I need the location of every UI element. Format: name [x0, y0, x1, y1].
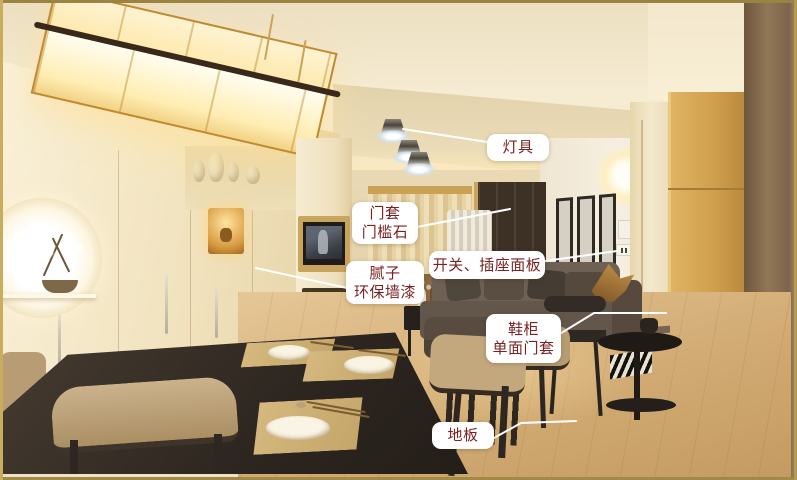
orchid-flower [66, 232, 73, 238]
label-text: 鞋柜 [486, 320, 561, 339]
label-text: 地板 [432, 426, 494, 445]
kettle [640, 318, 658, 334]
niche-shelf [0, 294, 96, 298]
label-text: 门套 [352, 204, 418, 223]
spoon [296, 402, 306, 408]
chair-leg [70, 440, 78, 474]
plate [268, 345, 310, 360]
round-side-table [598, 332, 682, 352]
label-text: 腻子 [346, 264, 424, 283]
tv-screen-content [318, 230, 328, 254]
dining-chair [50, 376, 239, 455]
cabinet-handle [165, 274, 168, 334]
cabinet-handle [215, 286, 218, 338]
niche-ornament [220, 228, 232, 242]
shoe-cabinet-seam [668, 188, 746, 190]
round-table-shelf [606, 398, 676, 412]
side-table-leg [408, 330, 411, 356]
orchid-flower [46, 250, 53, 256]
label-text: 环保墙漆 [346, 283, 424, 302]
label-text: 开关、插座面板 [429, 256, 545, 275]
label-text: 门槛石 [352, 223, 418, 242]
ceiling-corner [648, 0, 748, 100]
orchid-flower [76, 244, 83, 250]
picture-frame [599, 193, 616, 271]
label-switch-socket-panel: 开关、插座面板 [429, 251, 545, 279]
chair-leg [214, 434, 222, 474]
dark-chair-backrest [544, 296, 606, 312]
label-text: 单面门套 [486, 339, 561, 358]
plate [344, 356, 394, 374]
downlight-glow [403, 163, 435, 176]
orchid-flower [52, 228, 59, 234]
label-floor: 地板 [432, 422, 494, 449]
label-putty-eco-paint: 腻子 环保墙漆 [346, 261, 424, 304]
label-lighting-fixture: 灯具 [487, 134, 549, 161]
orchid-flower [38, 236, 45, 242]
plate [266, 416, 330, 440]
label-text: 灯具 [487, 138, 549, 157]
label-shoe-cabinet-casing: 鞋柜 单面门套 [486, 314, 561, 363]
label-door-casing-threshold: 门套 门槛石 [352, 202, 418, 244]
annotated-interior-photo: 灯具 门套 门槛石 开关、插座面板 腻子 环保墙漆 鞋柜 单面门套 地板 [0, 0, 797, 480]
